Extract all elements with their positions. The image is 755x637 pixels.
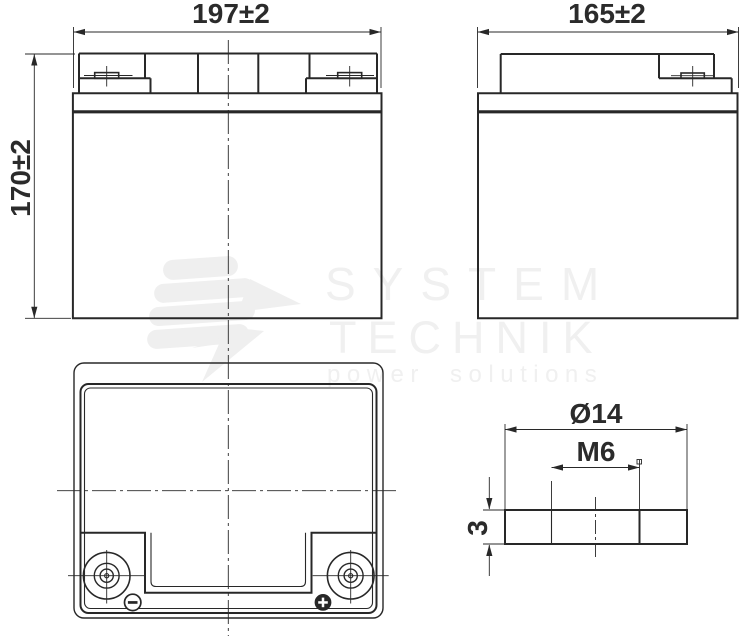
terminal-thread-label: M6 bbox=[577, 436, 616, 467]
front-height-dimension: 170±2 bbox=[5, 54, 75, 318]
front-left-terminal bbox=[84, 66, 133, 87]
watermark-brand-line1: SYSTEM bbox=[325, 258, 616, 310]
negative-terminal-icon bbox=[125, 594, 141, 610]
terminal-diameter-label: Ø14 bbox=[570, 398, 623, 429]
side-width-dimension-label: 165±2 bbox=[568, 0, 646, 29]
front-right-terminal bbox=[326, 66, 374, 87]
terminal-thread-dimension: M6 bbox=[552, 436, 642, 510]
terminal-thickness-dimension: 3 bbox=[462, 477, 504, 576]
positive-terminal-icon bbox=[315, 594, 332, 611]
watermark-brand-line2: TECHNIK bbox=[329, 312, 604, 363]
front-height-dimension-label: 170±2 bbox=[5, 139, 36, 217]
front-width-dimension: 197±2 bbox=[74, 0, 382, 88]
terminal-detail-view: Ø14 M6 3 bbox=[462, 398, 687, 576]
terminal-section-outline bbox=[505, 510, 687, 544]
side-width-dimension: 165±2 bbox=[478, 0, 739, 88]
front-width-dimension-label: 197±2 bbox=[192, 0, 270, 29]
side-terminal bbox=[671, 66, 713, 87]
battery-technical-drawing: SYSTEM TECHNIK power solutions 197±2 170… bbox=[0, 0, 755, 637]
terminal-thickness-label: 3 bbox=[462, 520, 493, 536]
